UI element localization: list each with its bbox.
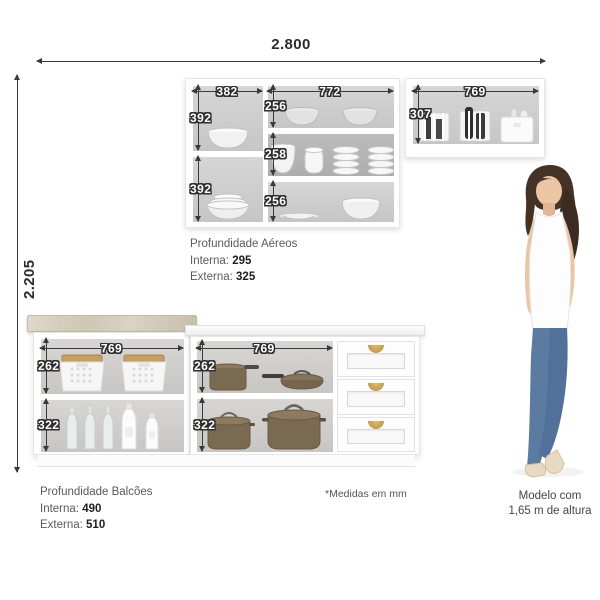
bowls-graphic — [193, 124, 263, 150]
dishes-graphic — [268, 195, 394, 221]
lower-depth-block: Profundidade Balcões Interna: 490 Extern… — [40, 484, 153, 534]
lower-left-shelf2-height-dim: 322 — [46, 399, 47, 451]
drawer-2 — [337, 379, 415, 415]
model-caption: Modelo com 1,65 m de altura — [498, 489, 600, 519]
bowls-graphic — [268, 105, 394, 127]
upper-depth-externa: Externa: 325 — [190, 269, 297, 286]
drawer-1 — [337, 341, 415, 377]
upper-center-shelf-2 — [268, 134, 394, 176]
drawer-handle-icon — [368, 383, 384, 391]
baskets-bottles-graphic — [413, 103, 539, 143]
baskets-graphic — [41, 353, 184, 393]
overall-height-dimension-line — [17, 75, 18, 472]
upper-right-width-dim: 769 — [412, 91, 538, 92]
lower-right-cabinet — [190, 336, 420, 455]
upper-depth-interna: Interna: 295 — [190, 253, 297, 270]
units-note: *Medidas em mm — [325, 488, 407, 500]
lower-depth-title: Profundidade Balcões — [40, 484, 153, 501]
upper-center-shelf-3 — [268, 182, 394, 222]
drawer-handle-icon — [368, 421, 384, 429]
upper-center-shelf2-height-dim: 258 — [273, 133, 274, 175]
drawer-handle-icon — [368, 345, 384, 353]
upper-depth-block: Profundidade Aéreos Interna: 295 Externa… — [190, 236, 297, 286]
upper-right-height-dim: 307 — [418, 85, 419, 143]
upper-center-shelf3-height-dim: 256 — [273, 181, 274, 221]
model-caption-line2: 1,65 m de altura — [498, 504, 600, 519]
lower-depth-interna: Interna: 490 — [40, 501, 153, 518]
model-caption-line1: Modelo com — [498, 489, 600, 504]
lower-left-width-dim: 769 — [40, 348, 183, 349]
lower-depth-externa: Externa: 510 — [40, 517, 153, 534]
lower-right-width-dim: 769 — [196, 348, 332, 349]
model-figure — [500, 160, 600, 480]
upper-left-shelf2-height-dim: 392 — [198, 156, 199, 221]
drawer-3 — [337, 417, 415, 452]
upper-main-cabinet — [185, 78, 400, 228]
overall-height-label: 2.205 — [21, 243, 38, 299]
lower-right-top — [185, 325, 425, 336]
pots-graphic — [197, 401, 333, 451]
upper-center-shelf1-height-dim: 256 — [273, 85, 274, 127]
bottles-graphic — [41, 403, 184, 451]
lower-left-shelf-bottom — [41, 400, 184, 452]
lower-right-shelf2-height-dim: 322 — [202, 398, 203, 451]
upper-depth-title: Profundidade Aéreos — [190, 236, 297, 253]
upper-center-width-dim: 772 — [267, 91, 393, 92]
bowls-graphic — [193, 191, 263, 221]
lower-right-shelf-bottom — [197, 399, 333, 452]
upper-left-shelf1-height-dim: 392 — [198, 85, 199, 150]
lower-right-shelf1-height-dim: 262 — [202, 340, 203, 392]
product-dimension-diagram: 2.800 2.205 — [0, 0, 600, 600]
overall-width-label: 2.800 — [37, 36, 545, 53]
lower-left-shelf1-height-dim: 262 — [46, 338, 47, 393]
upper-left-width-dim: 382 — [192, 91, 262, 92]
pans-graphic — [197, 356, 333, 392]
overall-width-dimension-line — [37, 61, 545, 62]
countertop — [27, 315, 197, 332]
cabinet-base — [38, 455, 415, 467]
dishes-graphic — [268, 141, 394, 175]
